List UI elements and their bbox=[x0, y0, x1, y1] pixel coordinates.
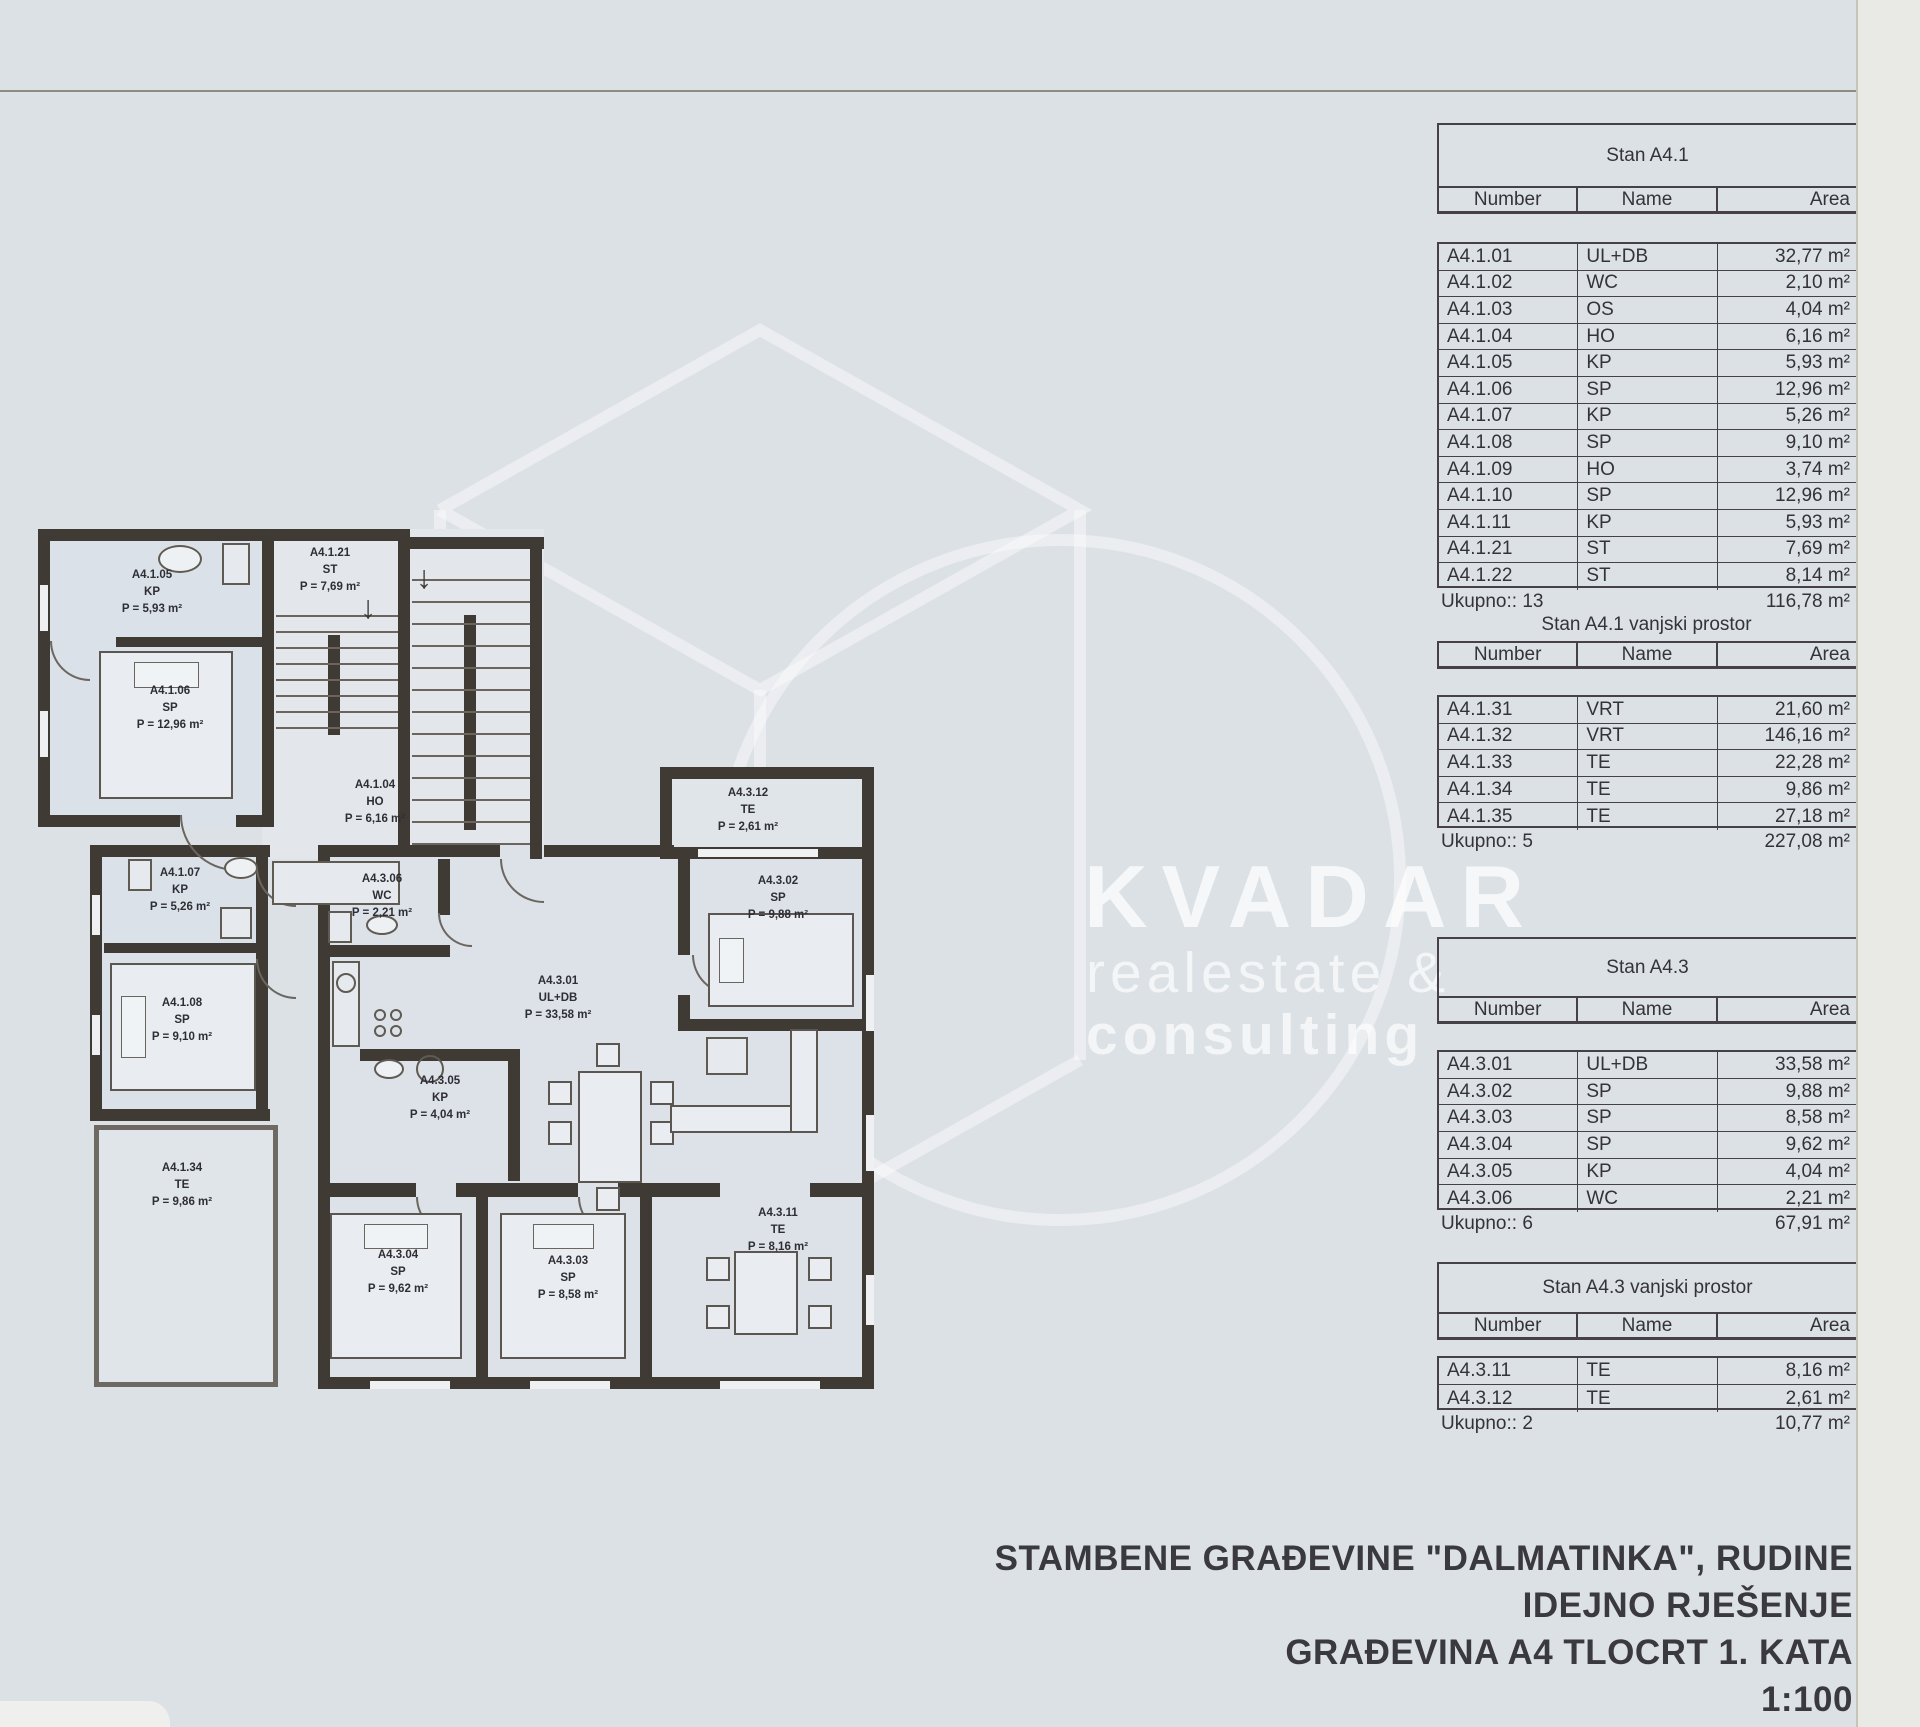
table-cell: OS bbox=[1578, 297, 1717, 323]
table-total-row: Ukupno:: 667,91 m² bbox=[1441, 1212, 1856, 1236]
table-cell: A4.3.03 bbox=[1439, 1105, 1578, 1131]
table-column-header: Name bbox=[1578, 998, 1717, 1021]
table-row: A4.1.06SP12,96 m² bbox=[1439, 377, 1856, 404]
table-total-row: Ukupno:: 210,77 m² bbox=[1441, 1412, 1856, 1436]
drawing-name: GRAĐEVINA A4 TLOCRT 1. KATA bbox=[995, 1629, 1853, 1676]
table-column-header: Number bbox=[1439, 1314, 1578, 1337]
table-cell: VRT bbox=[1578, 697, 1717, 723]
table-row: A4.1.10SP12,96 m² bbox=[1439, 483, 1856, 510]
table-cell: 21,60 m² bbox=[1718, 697, 1856, 723]
table-cell: A4.1.22 bbox=[1439, 563, 1578, 590]
table-cell: SP bbox=[1578, 1105, 1717, 1131]
table-cell: 12,96 m² bbox=[1718, 377, 1856, 403]
table-cell: 2,61 m² bbox=[1718, 1385, 1856, 1412]
table-cell: A4.1.08 bbox=[1439, 430, 1578, 456]
table-title: Stan A4.3 bbox=[1437, 937, 1856, 996]
table-row: A4.1.32VRT146,16 m² bbox=[1439, 724, 1856, 751]
table-cell: HO bbox=[1578, 324, 1717, 350]
table-column-header: Area bbox=[1718, 1314, 1856, 1337]
table-cell: 3,74 m² bbox=[1718, 457, 1856, 483]
table-cell: A4.3.01 bbox=[1439, 1052, 1578, 1078]
table-title: Stan A4.1 bbox=[1437, 123, 1856, 186]
table-row: A4.3.03SP8,58 m² bbox=[1439, 1105, 1856, 1132]
table-cell: A4.3.05 bbox=[1439, 1159, 1578, 1185]
table-cell: 2,10 m² bbox=[1718, 271, 1856, 297]
table-row: A4.1.04HO6,16 m² bbox=[1439, 324, 1856, 351]
table-cell: KP bbox=[1578, 350, 1717, 376]
table-row: A4.3.06WC2,21 m² bbox=[1439, 1185, 1856, 1212]
table-total-area: 67,91 m² bbox=[1775, 1213, 1856, 1235]
table-row: A4.1.22ST8,14 m² bbox=[1439, 563, 1856, 590]
table-row: A4.1.07KP5,26 m² bbox=[1439, 404, 1856, 431]
table-column-header: Number bbox=[1439, 643, 1578, 666]
table-cell: A4.1.02 bbox=[1439, 271, 1578, 297]
table-cell: 7,69 m² bbox=[1718, 537, 1856, 563]
table-total-label: Ukupno:: 6 bbox=[1441, 1213, 1533, 1235]
table-row: A4.1.01UL+DB32,77 m² bbox=[1439, 244, 1856, 271]
table-cell: A4.1.35 bbox=[1439, 803, 1578, 830]
table-cell: 12,96 m² bbox=[1718, 483, 1856, 509]
table-column-header: Area bbox=[1718, 643, 1856, 666]
table-cell: A4.3.12 bbox=[1439, 1385, 1578, 1412]
table-header-row: NumberNameArea bbox=[1437, 186, 1856, 214]
table-total-area: 10,77 m² bbox=[1775, 1413, 1856, 1435]
table-row: A4.3.11TE8,16 m² bbox=[1439, 1358, 1856, 1385]
table-cell: A4.1.10 bbox=[1439, 483, 1578, 509]
table-row: A4.1.02WC2,10 m² bbox=[1439, 271, 1856, 298]
table-cell: KP bbox=[1578, 404, 1717, 430]
table-cell: A4.1.11 bbox=[1439, 510, 1578, 536]
table-cell: TE bbox=[1578, 1358, 1717, 1384]
table-row: A4.1.08SP9,10 m² bbox=[1439, 430, 1856, 457]
table-cell: A4.3.06 bbox=[1439, 1185, 1578, 1212]
table-cell: A4.1.01 bbox=[1439, 244, 1578, 270]
table-cell: 22,28 m² bbox=[1718, 750, 1856, 776]
table-row: A4.1.03OS4,04 m² bbox=[1439, 297, 1856, 324]
drawing-title-block: STAMBENE GRAĐEVINE "DALMATINKA", RUDINE … bbox=[995, 1535, 1853, 1723]
table-cell: TE bbox=[1578, 750, 1717, 776]
table-cell: SP bbox=[1578, 1079, 1717, 1105]
table-column-header: Number bbox=[1439, 188, 1578, 211]
project-title: STAMBENE GRAĐEVINE "DALMATINKA", RUDINE bbox=[995, 1535, 1853, 1582]
table-cell: A4.1.33 bbox=[1439, 750, 1578, 776]
project-subtitle: IDEJNO RJEŠENJE bbox=[995, 1582, 1853, 1629]
table-cell: 5,93 m² bbox=[1718, 510, 1856, 536]
table-column-header: Area bbox=[1718, 188, 1856, 211]
drawing-scale: 1:100 bbox=[995, 1676, 1853, 1723]
table-row: A4.1.05KP5,93 m² bbox=[1439, 350, 1856, 377]
table-row: A4.1.21ST7,69 m² bbox=[1439, 537, 1856, 564]
table-row: A4.1.09HO3,74 m² bbox=[1439, 457, 1856, 484]
table-cell: A4.1.06 bbox=[1439, 377, 1578, 403]
table-row: A4.1.31VRT21,60 m² bbox=[1439, 697, 1856, 724]
table-cell: A4.1.31 bbox=[1439, 697, 1578, 723]
table-total-label: Ukupno:: 5 bbox=[1441, 831, 1533, 853]
table-cell: WC bbox=[1578, 271, 1717, 297]
table-total-area: 227,08 m² bbox=[1764, 831, 1856, 853]
table-cell: 33,58 m² bbox=[1718, 1052, 1856, 1078]
table-cell: TE bbox=[1578, 803, 1717, 830]
table-cell: 6,16 m² bbox=[1718, 324, 1856, 350]
table-cell: ST bbox=[1578, 563, 1717, 590]
table-cell: A4.1.05 bbox=[1439, 350, 1578, 376]
table-title: Stan A4.3 vanjski prostor bbox=[1437, 1262, 1856, 1312]
table-header-row: NumberNameArea bbox=[1437, 996, 1856, 1024]
table-cell: A4.1.34 bbox=[1439, 777, 1578, 803]
paper-edge bbox=[1856, 0, 1920, 1727]
table-cell: SP bbox=[1578, 1132, 1717, 1158]
table-cell: UL+DB bbox=[1578, 244, 1717, 270]
table-cell: A4.1.21 bbox=[1439, 537, 1578, 563]
table-body: A4.1.31VRT21,60 m²A4.1.32VRT146,16 m²A4.… bbox=[1437, 695, 1856, 828]
table-cell: 9,10 m² bbox=[1718, 430, 1856, 456]
table-cell: SP bbox=[1578, 483, 1717, 509]
table-cell: 8,16 m² bbox=[1718, 1358, 1856, 1384]
table-cell: 5,26 m² bbox=[1718, 404, 1856, 430]
table-cell: TE bbox=[1578, 777, 1717, 803]
table-cell: 32,77 m² bbox=[1718, 244, 1856, 270]
table-cell: A4.1.07 bbox=[1439, 404, 1578, 430]
table-row: A4.3.05KP4,04 m² bbox=[1439, 1159, 1856, 1186]
table-cell: SP bbox=[1578, 430, 1717, 456]
table-cell: 27,18 m² bbox=[1718, 803, 1856, 830]
table-cell: A4.3.11 bbox=[1439, 1358, 1578, 1384]
table-cell: VRT bbox=[1578, 724, 1717, 750]
table-body: A4.3.11TE8,16 m²A4.3.12TE2,61 m² bbox=[1437, 1356, 1856, 1410]
table-cell: KP bbox=[1578, 510, 1717, 536]
table-row: A4.3.04SP9,62 m² bbox=[1439, 1132, 1856, 1159]
table-column-header: Name bbox=[1578, 188, 1717, 211]
table-cell: WC bbox=[1578, 1185, 1717, 1212]
table-cell: KP bbox=[1578, 1159, 1717, 1185]
table-cell: UL+DB bbox=[1578, 1052, 1717, 1078]
table-cell: A4.3.04 bbox=[1439, 1132, 1578, 1158]
table-row: A4.1.34TE9,86 m² bbox=[1439, 777, 1856, 804]
table-cell: ST bbox=[1578, 537, 1717, 563]
table-cell: 9,62 m² bbox=[1718, 1132, 1856, 1158]
table-total-label: Ukupno:: 2 bbox=[1441, 1413, 1533, 1435]
table-cell: A4.1.04 bbox=[1439, 324, 1578, 350]
table-cell: 8,14 m² bbox=[1718, 563, 1856, 590]
area-tables: Stan A4.1NumberNameAreaA4.1.01UL+DB32,77… bbox=[0, 0, 1920, 1727]
table-cell: 8,58 m² bbox=[1718, 1105, 1856, 1131]
table-row: A4.3.12TE2,61 m² bbox=[1439, 1385, 1856, 1412]
table-cell: 2,21 m² bbox=[1718, 1185, 1856, 1212]
table-body: A4.3.01UL+DB33,58 m²A4.3.02SP9,88 m²A4.3… bbox=[1437, 1050, 1856, 1210]
table-cell: A4.1.32 bbox=[1439, 724, 1578, 750]
table-header-row: NumberNameArea bbox=[1437, 641, 1856, 669]
table-cell: A4.3.02 bbox=[1439, 1079, 1578, 1105]
table-body: A4.1.01UL+DB32,77 m²A4.1.02WC2,10 m²A4.1… bbox=[1437, 242, 1856, 588]
table-cell: A4.1.03 bbox=[1439, 297, 1578, 323]
table-cell: 5,93 m² bbox=[1718, 350, 1856, 376]
table-column-header: Number bbox=[1439, 998, 1578, 1021]
table-cell: TE bbox=[1578, 1385, 1717, 1412]
table-header-row: NumberNameArea bbox=[1437, 1312, 1856, 1340]
table-cell: 9,86 m² bbox=[1718, 777, 1856, 803]
table-cell: SP bbox=[1578, 377, 1717, 403]
table-column-header: Name bbox=[1578, 1314, 1717, 1337]
table-cell: HO bbox=[1578, 457, 1717, 483]
table-row: A4.3.01UL+DB33,58 m² bbox=[1439, 1052, 1856, 1079]
table-cell: 9,88 m² bbox=[1718, 1079, 1856, 1105]
table-cell: 4,04 m² bbox=[1718, 297, 1856, 323]
table-column-header: Area bbox=[1718, 998, 1856, 1021]
table-total-row: Ukupno:: 5227,08 m² bbox=[1441, 830, 1856, 854]
table-title: Stan A4.1 vanjski prostor bbox=[1437, 608, 1856, 641]
table-cell: A4.1.09 bbox=[1439, 457, 1578, 483]
table-cell: 146,16 m² bbox=[1718, 724, 1856, 750]
table-row: A4.1.35TE27,18 m² bbox=[1439, 803, 1856, 830]
table-row: A4.1.11KP5,93 m² bbox=[1439, 510, 1856, 537]
table-row: A4.3.02SP9,88 m² bbox=[1439, 1079, 1856, 1106]
table-column-header: Name bbox=[1578, 643, 1717, 666]
table-cell: 4,04 m² bbox=[1718, 1159, 1856, 1185]
table-row: A4.1.33TE22,28 m² bbox=[1439, 750, 1856, 777]
